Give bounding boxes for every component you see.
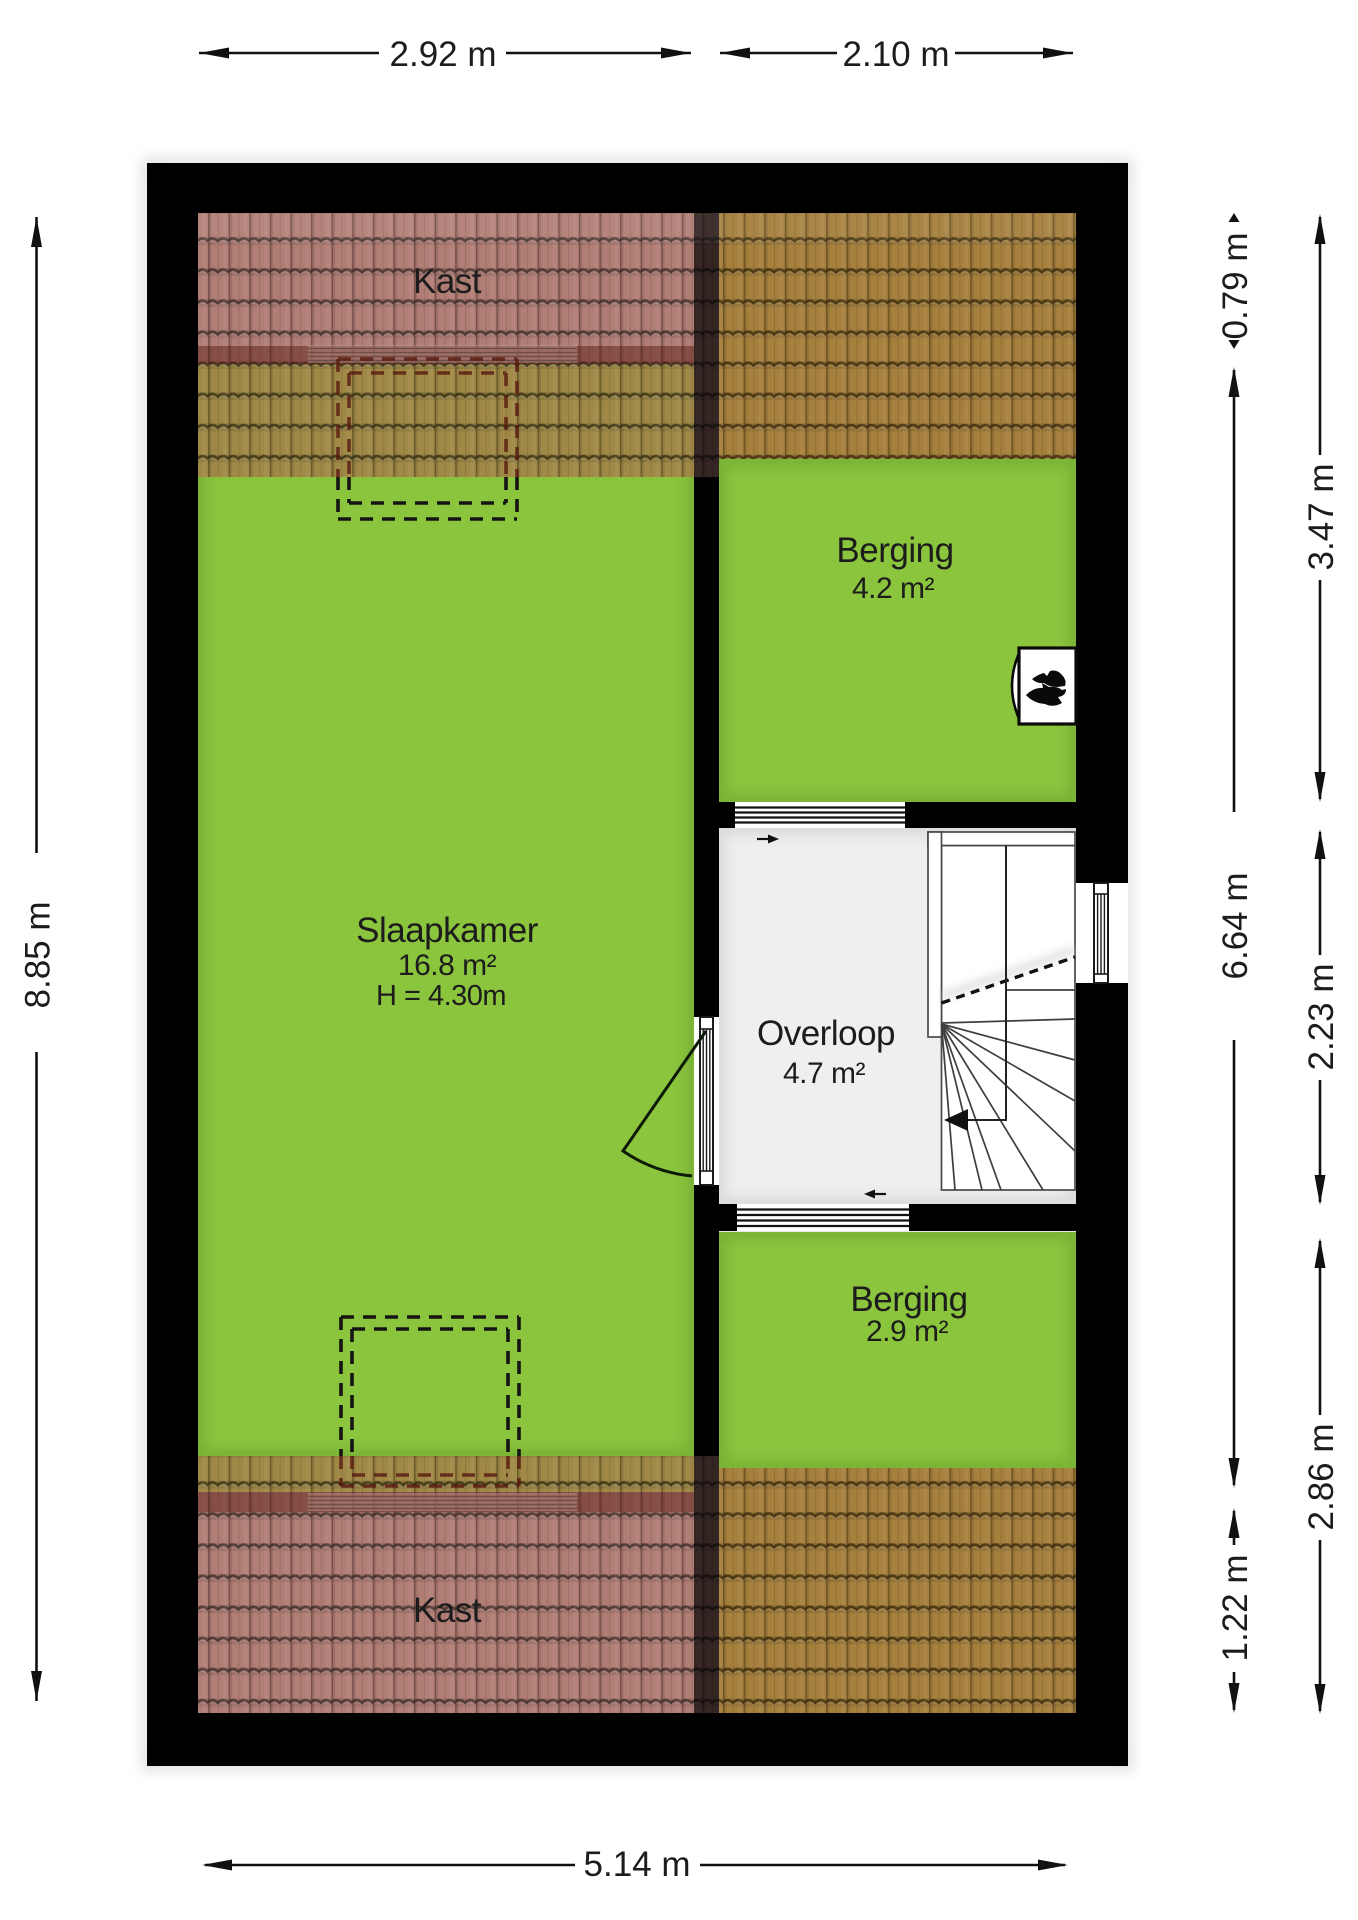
svg-text:16.8 m²: 16.8 m² [398, 949, 497, 982]
svg-text:2.86 m: 2.86 m [1302, 1424, 1341, 1531]
svg-text:8.85 m: 8.85 m [19, 902, 58, 1009]
svg-text:2.9 m²: 2.9 m² [866, 1315, 949, 1348]
svg-text:6.64 m: 6.64 m [1216, 873, 1255, 980]
svg-text:Slaapkamer: Slaapkamer [356, 911, 539, 950]
svg-text:Kast: Kast [413, 1591, 482, 1630]
svg-text:Berging: Berging [850, 1280, 967, 1319]
svg-text:5.14 m: 5.14 m [584, 1845, 691, 1884]
svg-text:Overloop: Overloop [757, 1014, 895, 1053]
svg-text:2.23 m: 2.23 m [1302, 964, 1341, 1071]
svg-text:H = 4.30m: H = 4.30m [376, 980, 506, 1012]
svg-text:2.10 m: 2.10 m [843, 35, 950, 74]
svg-text:4.2 m²: 4.2 m² [852, 572, 935, 605]
svg-text:0.79 m: 0.79 m [1216, 233, 1255, 340]
svg-text:4.7 m²: 4.7 m² [783, 1057, 866, 1090]
svg-text:2.92 m: 2.92 m [390, 35, 497, 74]
svg-text:Berging: Berging [836, 531, 953, 570]
svg-text:1.22 m: 1.22 m [1216, 1555, 1255, 1662]
svg-text:Kast: Kast [413, 262, 482, 301]
svg-text:3.47 m: 3.47 m [1302, 464, 1341, 571]
